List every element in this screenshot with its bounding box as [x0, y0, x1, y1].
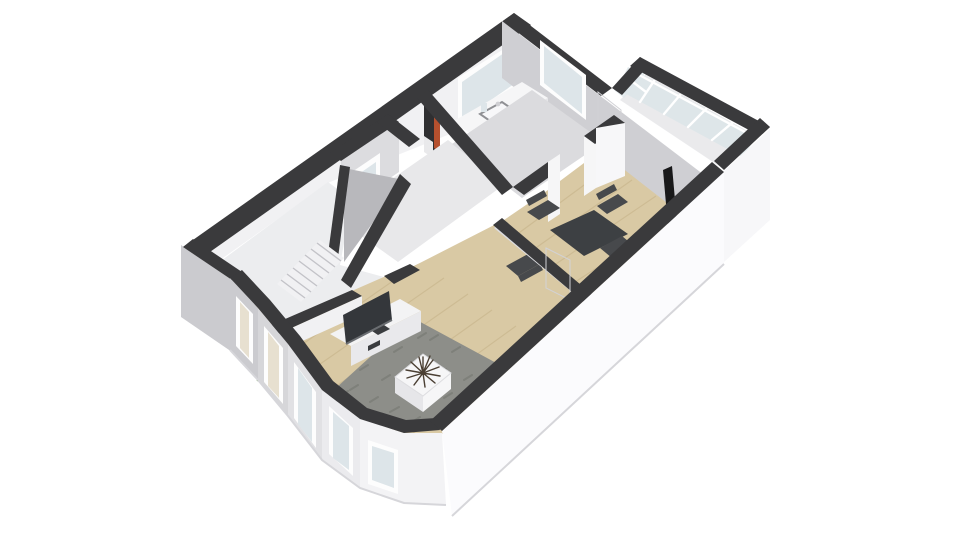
- counter-cup: [481, 103, 487, 112]
- sink-faucet: [496, 102, 501, 107]
- floor-plan-render: [0, 0, 960, 540]
- floor-plan-canvas: [0, 0, 960, 540]
